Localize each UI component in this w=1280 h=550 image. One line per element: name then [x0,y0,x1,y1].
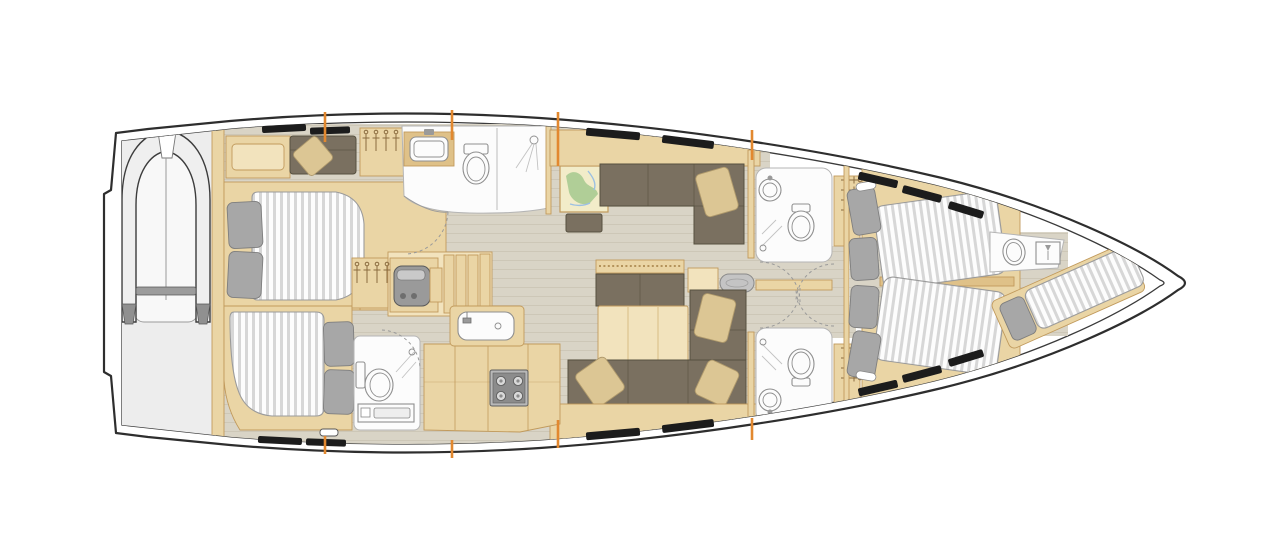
side-table [688,268,718,292]
tender-garage [116,124,224,442]
stove [490,370,528,406]
inflatable-dinghy [122,130,210,324]
salon-pouf [720,274,754,292]
twin-berth-mattress [873,276,1007,376]
pillow [849,237,880,281]
hanging-locker [360,128,404,176]
faucet [424,129,434,135]
nav-seat [566,214,602,232]
pillow [849,285,880,329]
twin-berth-mattress [873,190,1007,290]
yacht-floorplan-canvas [0,0,1280,550]
ensuite-head [354,330,420,430]
salon-bench-forward [596,260,684,306]
bulkhead [748,150,754,258]
double-berth-mattress [252,192,364,300]
toilet [788,204,814,241]
toilet [463,144,489,184]
floorplan-svg [0,0,1280,550]
round-sink [759,389,781,411]
salon-table [598,306,688,364]
garage-bulkhead [212,124,224,442]
dinghy-transom [136,287,196,295]
sink [458,312,514,340]
pillow [323,321,355,366]
shower [1036,242,1060,264]
galley-sink-unit [450,306,524,346]
corridor-partition [756,280,832,290]
salon-sofa-aft [568,355,746,408]
cabin-sofa [290,135,356,177]
double-berth-mattress [230,312,324,416]
pillow [227,251,263,299]
toilet [788,349,814,386]
interior [116,124,1148,450]
pillow [227,201,263,249]
mid-head-port [756,168,832,262]
vent [320,429,338,436]
pillow [323,369,355,414]
hanging-locker [352,258,391,308]
round-sink [759,179,781,201]
